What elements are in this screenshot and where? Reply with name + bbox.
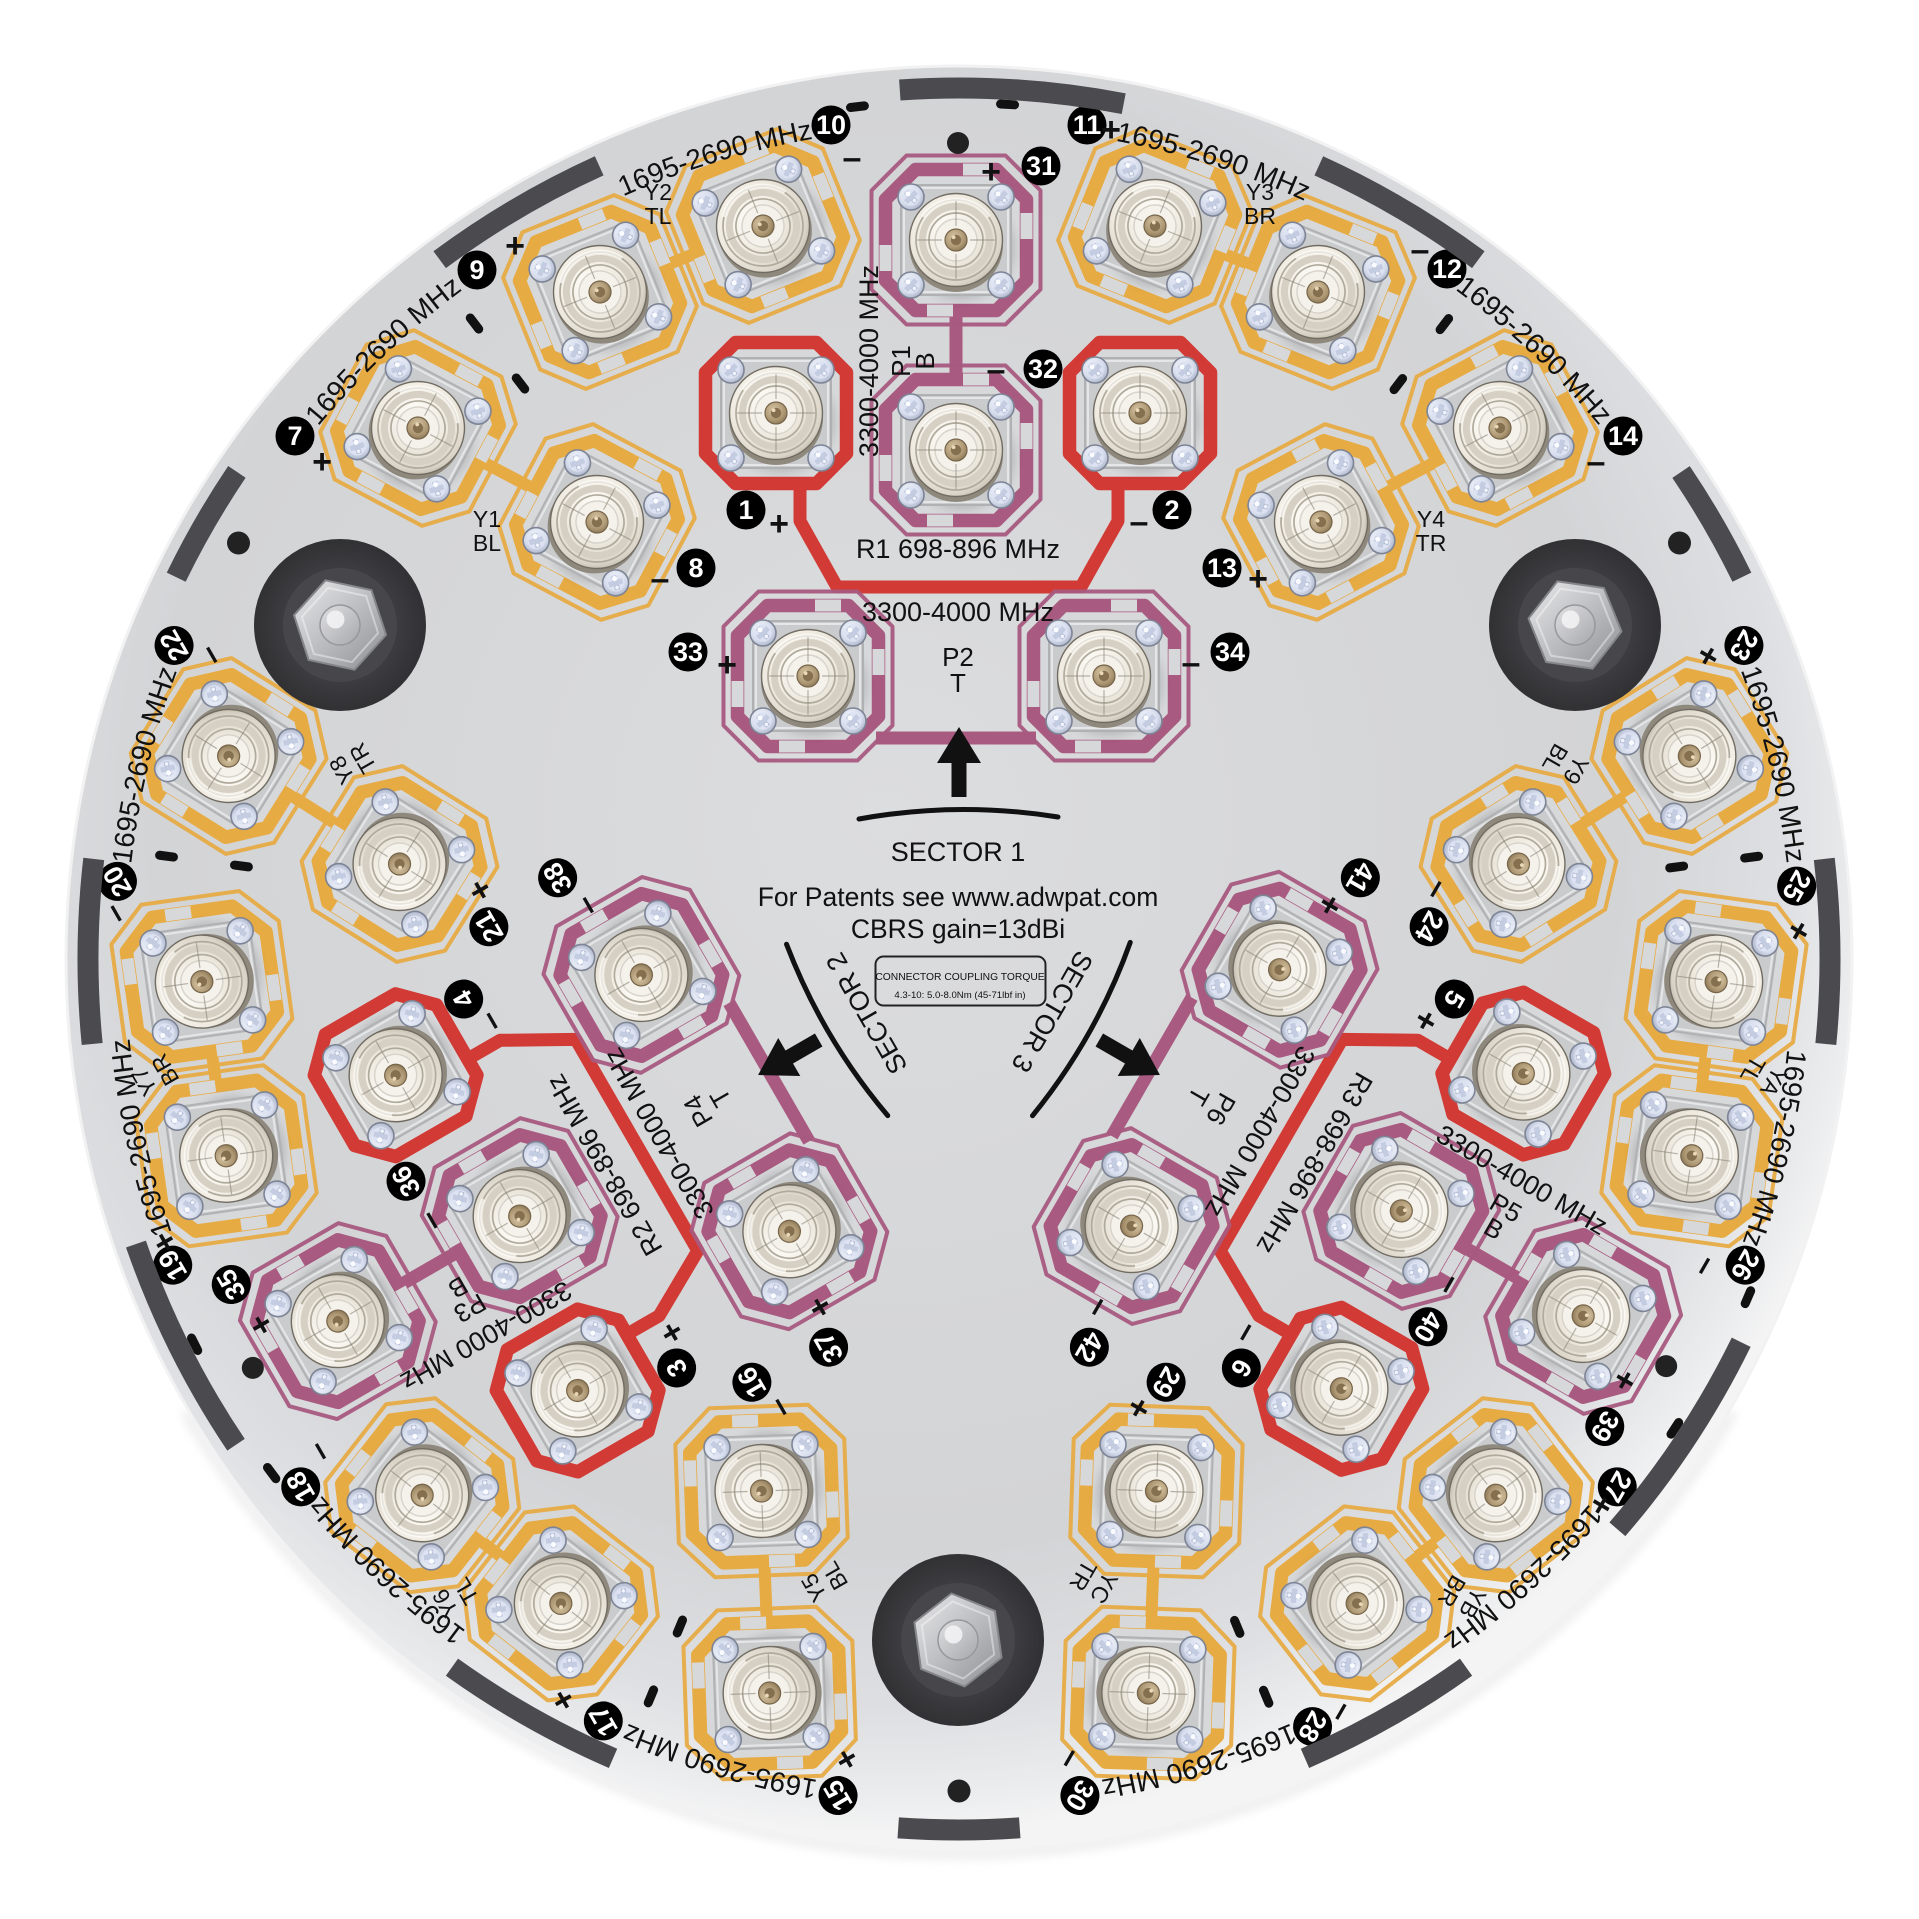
svg-text:Y1: Y1 bbox=[473, 506, 501, 532]
svg-text:13: 13 bbox=[1207, 553, 1237, 583]
svg-text:+: + bbox=[981, 153, 1001, 191]
svg-text:–: – bbox=[1182, 644, 1201, 682]
svg-text:For Patents see www.adwpat.com: For Patents see www.adwpat.com bbox=[758, 882, 1159, 912]
svg-text:B: B bbox=[910, 352, 940, 369]
svg-text:–: – bbox=[651, 560, 670, 598]
svg-text:8: 8 bbox=[688, 553, 703, 583]
svg-text:CONNECTOR COUPLING TORQUE: CONNECTOR COUPLING TORQUE bbox=[875, 972, 1044, 983]
svg-text:CBRS gain=13dBi: CBRS gain=13dBi bbox=[851, 914, 1065, 944]
svg-text:+: + bbox=[505, 227, 525, 265]
svg-text:34: 34 bbox=[1215, 637, 1245, 667]
svg-text:12: 12 bbox=[1432, 254, 1462, 284]
svg-text:+: + bbox=[717, 646, 737, 684]
svg-text:SECTOR 1: SECTOR 1 bbox=[891, 837, 1026, 867]
svg-text:TR: TR bbox=[1416, 530, 1447, 556]
svg-text:+: + bbox=[1248, 560, 1268, 598]
svg-text:33: 33 bbox=[673, 637, 703, 667]
svg-text:32: 32 bbox=[1028, 354, 1058, 384]
svg-text:+: + bbox=[769, 505, 789, 543]
svg-text:Y4: Y4 bbox=[1417, 506, 1445, 532]
svg-text:14: 14 bbox=[1608, 421, 1638, 451]
svg-text:11: 11 bbox=[1073, 110, 1102, 140]
svg-text:31: 31 bbox=[1026, 151, 1056, 181]
svg-text:T: T bbox=[950, 668, 966, 698]
svg-text:–: – bbox=[1411, 231, 1430, 269]
svg-text:4.3-10: 5.0-8.0Nm (45-71lbf in: 4.3-10: 5.0-8.0Nm (45-71lbf in) bbox=[894, 990, 1025, 1001]
svg-text:–: – bbox=[843, 139, 862, 177]
svg-text:7: 7 bbox=[287, 421, 302, 451]
svg-text:TL: TL bbox=[645, 203, 672, 229]
svg-text:+: + bbox=[312, 443, 332, 481]
svg-text:9: 9 bbox=[469, 255, 484, 285]
svg-text:2: 2 bbox=[1164, 495, 1179, 525]
svg-text:BR: BR bbox=[1244, 203, 1276, 229]
svg-text:–: – bbox=[1130, 503, 1149, 541]
svg-text:–: – bbox=[1587, 443, 1606, 481]
svg-text:10: 10 bbox=[816, 110, 846, 140]
svg-text:–: – bbox=[987, 351, 1006, 389]
svg-text:3300-4000 MHz: 3300-4000 MHz bbox=[862, 597, 1054, 627]
svg-text:1: 1 bbox=[738, 495, 753, 525]
svg-text:R1 698-896 MHz: R1 698-896 MHz bbox=[856, 534, 1060, 564]
svg-text:BL: BL bbox=[473, 530, 501, 556]
svg-text:3300-4000 MHz: 3300-4000 MHz bbox=[854, 265, 884, 457]
